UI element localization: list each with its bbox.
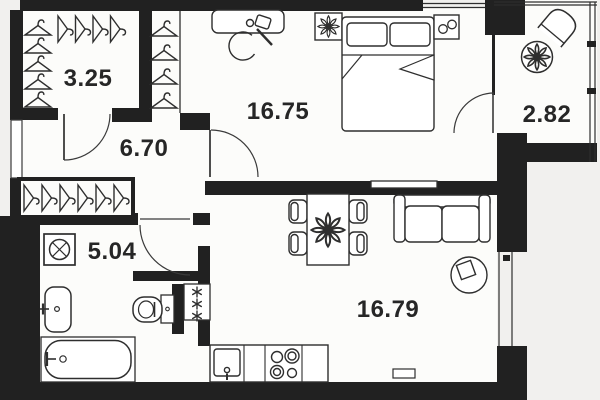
- kitchen-sink: [214, 349, 240, 380]
- radiator: [393, 369, 415, 378]
- table-plant-icon: [311, 213, 344, 246]
- wall: [112, 108, 152, 122]
- pillow: [390, 23, 430, 46]
- balcony-partition-wall: [492, 0, 495, 95]
- wall: [180, 113, 210, 130]
- room-label-living-kitchen: 16.79: [357, 296, 420, 323]
- floor-plan: 3.25 6.70 16.75 2.82 5.04 16.79: [0, 0, 600, 400]
- wall: [22, 108, 58, 120]
- chair-back: [291, 203, 298, 221]
- kitchen-counter: [210, 345, 328, 382]
- wall: [198, 320, 210, 346]
- vent-shaft: [184, 284, 210, 321]
- wall: [0, 382, 527, 400]
- wall: [133, 271, 210, 281]
- sofa: [394, 195, 490, 242]
- chair-back: [291, 235, 298, 253]
- hallway-wardrobe: [19, 179, 133, 217]
- chair-back: [357, 235, 364, 253]
- room-label-bedroom: 16.75: [247, 98, 310, 125]
- chair-back: [357, 203, 364, 221]
- living-room-window: [499, 252, 512, 346]
- bathroom-sink: [40, 287, 71, 332]
- bathtub: [41, 337, 135, 382]
- room-label-balcony: 2.82: [523, 101, 572, 128]
- room-label-bathroom: 5.04: [88, 238, 137, 265]
- washing-machine: [44, 234, 75, 265]
- bedroom-top-window: [423, 4, 485, 8]
- room-label-hallway: 6.70: [120, 135, 169, 162]
- tv: [371, 181, 437, 188]
- pillow: [347, 23, 387, 46]
- bed: [342, 17, 434, 131]
- wall: [205, 181, 497, 195]
- wall: [497, 133, 527, 252]
- entry-door: [11, 120, 22, 178]
- wall: [527, 143, 597, 162]
- toilet: [133, 295, 174, 323]
- floor-plan-drawing: 3.25 6.70 16.75 2.82 5.04 16.79: [0, 0, 600, 400]
- wall: [497, 346, 527, 400]
- wall: [0, 216, 40, 386]
- plant-icon: [318, 16, 339, 37]
- floor-lamp: [451, 257, 487, 293]
- wall: [10, 10, 23, 120]
- wall: [193, 213, 210, 225]
- room-label-wardrobe: 3.25: [64, 65, 113, 92]
- potted-plant-icon: [524, 44, 550, 70]
